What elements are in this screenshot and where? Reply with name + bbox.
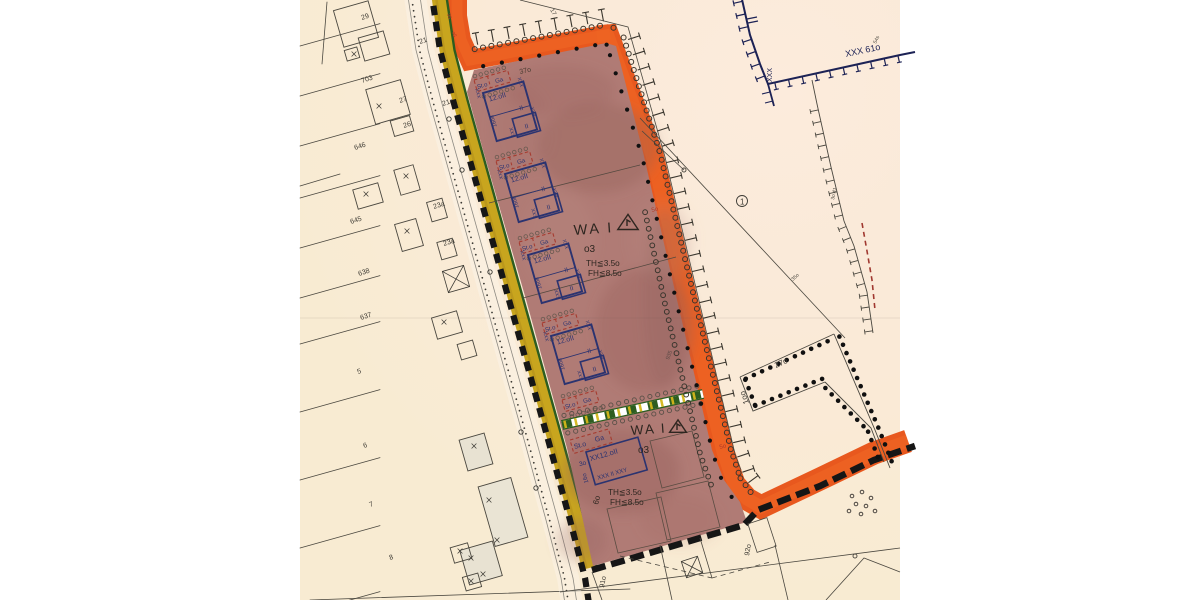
svg-text:1: 1	[740, 198, 745, 207]
svg-text:WA I: WA I	[573, 220, 614, 239]
svg-text:o3: o3	[638, 445, 650, 456]
svg-text:XXX: XXX	[767, 68, 774, 82]
svg-text:FH≦8.5o: FH≦8.5o	[610, 498, 644, 507]
svg-text:TH≦3.5o: TH≦3.5o	[586, 259, 620, 268]
svg-text:o3: o3	[584, 244, 596, 255]
svg-text:TH≦3.5o: TH≦3.5o	[608, 488, 642, 497]
svg-text:FH≦8.5o: FH≦8.5o	[588, 269, 622, 278]
svg-text:WA I: WA I	[630, 421, 667, 438]
